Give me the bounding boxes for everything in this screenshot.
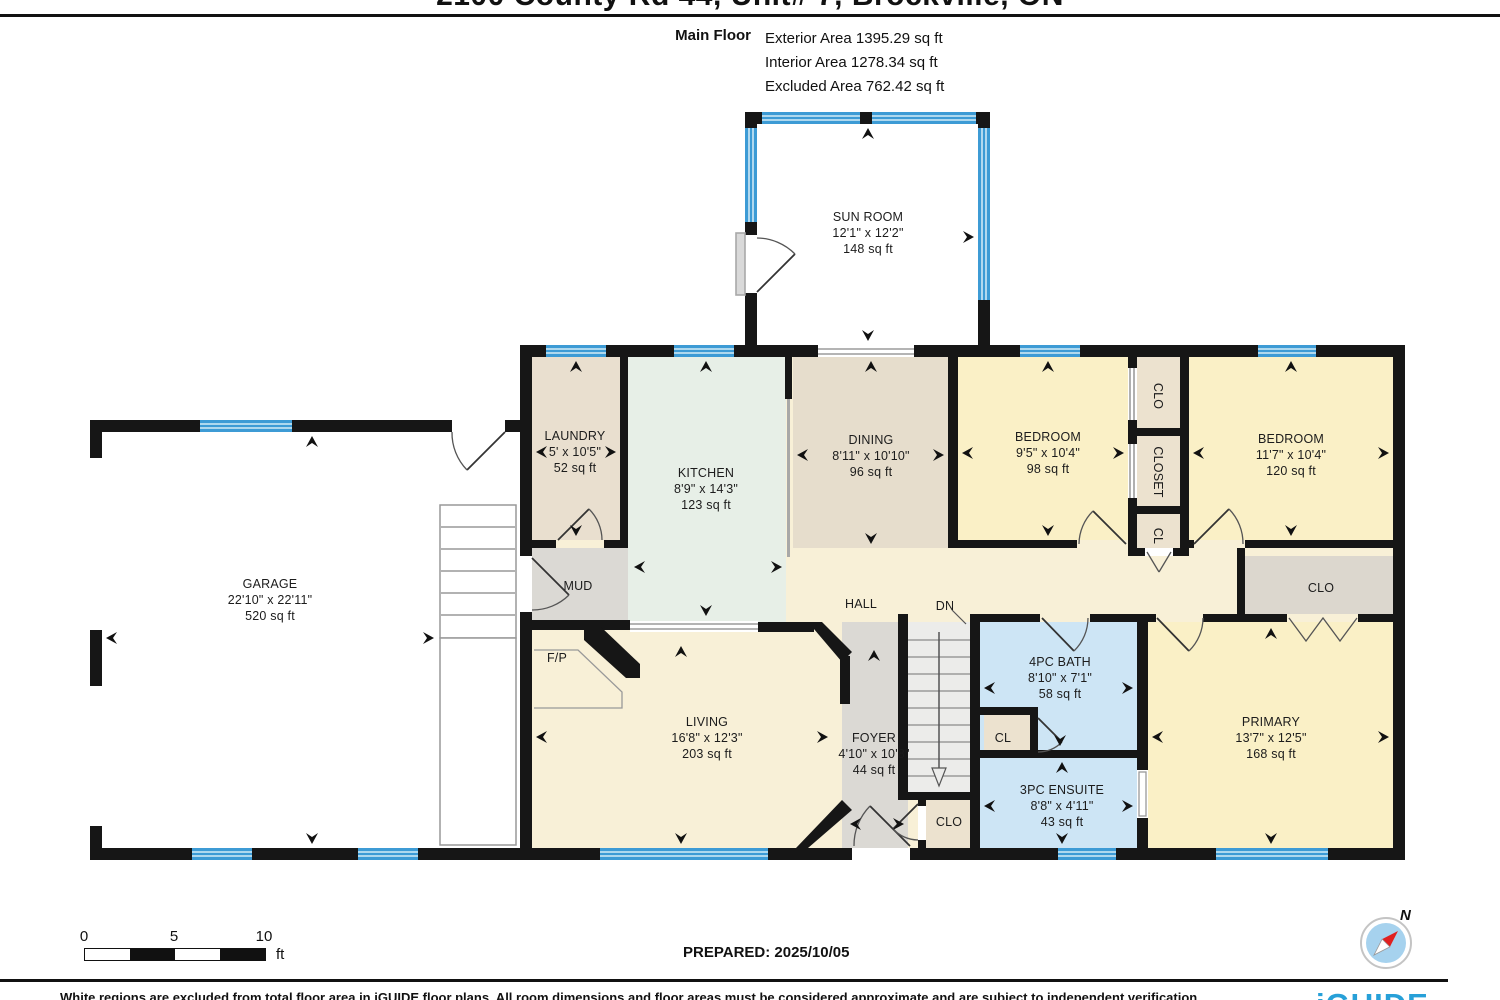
room-name: KITCHEN bbox=[674, 465, 738, 481]
room-name: BEDROOM bbox=[1256, 431, 1326, 447]
room-label-clo-right: CLO bbox=[1308, 580, 1334, 596]
room-name: PRIMARY bbox=[1235, 714, 1306, 730]
room-name: HALL bbox=[845, 596, 877, 612]
room-label-foyer: FOYER4'10" x 10'8"44 sq ft bbox=[838, 730, 909, 778]
room-name: CLOSET bbox=[1150, 446, 1166, 497]
scale-tick-5: 5 bbox=[170, 928, 178, 945]
room-dim: 13'7" x 12'5" bbox=[1235, 730, 1306, 746]
room-name: LIVING bbox=[671, 714, 742, 730]
room-dim: 16'8" x 12'3" bbox=[671, 730, 742, 746]
room-name: CL bbox=[995, 730, 1011, 746]
room-label-dn: DN bbox=[936, 598, 954, 614]
compass-north-label: N bbox=[1400, 907, 1412, 924]
disclaimer-text: White regions are excluded from total fl… bbox=[60, 990, 1201, 1000]
scale-unit: ft bbox=[276, 946, 284, 963]
room-dim: 11'7" x 10'4" bbox=[1256, 447, 1326, 463]
room-label-cl-mid: CL bbox=[1150, 528, 1166, 544]
room-name: 4PC BATH bbox=[1028, 654, 1092, 670]
room-dim: 22'10" x 22'11" bbox=[228, 592, 313, 608]
room-dim: 8'10" x 7'1" bbox=[1028, 670, 1092, 686]
room-label-bedroom-1: BEDROOM9'5" x 10'4"98 sq ft bbox=[1015, 429, 1081, 477]
room-area: 120 sq ft bbox=[1256, 463, 1326, 479]
room-name: 3PC ENSUITE bbox=[1020, 782, 1104, 798]
room-area: 520 sq ft bbox=[228, 608, 313, 624]
floor-plan-page: 2100 County Rd 44, Unit# 7, Brockville, … bbox=[0, 0, 1500, 1000]
room-area: 168 sq ft bbox=[1235, 746, 1306, 762]
room-name: SUN ROOM bbox=[832, 209, 903, 225]
room-label-clo-foyer: CLO bbox=[936, 814, 962, 830]
room-area: 43 sq ft bbox=[1020, 814, 1104, 830]
iguide-logo: iGUIDE bbox=[1316, 987, 1429, 1000]
room-label-bath-4pc: 4PC BATH8'10" x 7'1"58 sq ft bbox=[1028, 654, 1092, 702]
room-name: BEDROOM bbox=[1015, 429, 1081, 445]
scale-bar-segments bbox=[84, 948, 266, 961]
room-label-primary: PRIMARY13'7" x 12'5"168 sq ft bbox=[1235, 714, 1306, 762]
room-name: F/P bbox=[547, 650, 567, 666]
room-dim: 8'8" x 4'11" bbox=[1020, 798, 1104, 814]
room-area: 44 sq ft bbox=[838, 762, 909, 778]
garage-stairs bbox=[440, 505, 516, 845]
room-area: 98 sq ft bbox=[1015, 461, 1081, 477]
room-label-ensuite-3pc: 3PC ENSUITE8'8" x 4'11"43 sq ft bbox=[1020, 782, 1104, 830]
room-area: 58 sq ft bbox=[1028, 686, 1092, 702]
room-dim: 5' x 10'5" bbox=[545, 444, 606, 460]
room-name: LAUNDRY bbox=[545, 428, 606, 444]
room-label-bedroom-2: BEDROOM11'7" x 10'4"120 sq ft bbox=[1256, 431, 1326, 479]
room-label-living: LIVING16'8" x 12'3"203 sq ft bbox=[671, 714, 742, 762]
room-area: 96 sq ft bbox=[832, 464, 909, 480]
compass-icon: N bbox=[1354, 906, 1424, 976]
room-dim: 9'5" x 10'4" bbox=[1015, 445, 1081, 461]
room-name: CL bbox=[1150, 528, 1166, 544]
room-dim: 4'10" x 10'8" bbox=[838, 746, 909, 762]
room-name: CLO bbox=[936, 814, 962, 830]
room-area: 148 sq ft bbox=[832, 241, 903, 257]
room-area: 52 sq ft bbox=[545, 460, 606, 476]
room-label-cl-bath: CL bbox=[995, 730, 1011, 746]
room-label-dining: DINING8'11" x 10'10"96 sq ft bbox=[832, 432, 909, 480]
room-dim: 8'11" x 10'10" bbox=[832, 448, 909, 464]
prepared-date: PREPARED: 2025/10/05 bbox=[683, 944, 849, 961]
room-name: DINING bbox=[832, 432, 909, 448]
room-name: GARAGE bbox=[228, 576, 313, 592]
room-label-garage: GARAGE22'10" x 22'11"520 sq ft bbox=[228, 576, 313, 624]
room-label-hall: HALL bbox=[845, 596, 877, 612]
footer-divider bbox=[0, 979, 1448, 982]
room-area: 123 sq ft bbox=[674, 497, 738, 513]
room-label-mud: MUD bbox=[563, 578, 592, 594]
room-dim: 12'1" x 12'2" bbox=[832, 225, 903, 241]
room-label-sun-room: SUN ROOM12'1" x 12'2"148 sq ft bbox=[832, 209, 903, 257]
room-label-clo-top: CLO bbox=[1150, 383, 1166, 409]
scale-tick-0: 0 bbox=[80, 928, 88, 945]
room-name: CLO bbox=[1150, 383, 1166, 409]
scale-bar: 0 5 10 ft bbox=[84, 928, 284, 968]
room-label-fp: F/P bbox=[547, 650, 567, 666]
room-name: FOYER bbox=[838, 730, 909, 746]
room-name: DN bbox=[936, 598, 954, 614]
room-label-laundry: LAUNDRY5' x 10'5"52 sq ft bbox=[545, 428, 606, 476]
room-label-closet-mid: CLOSET bbox=[1150, 446, 1166, 497]
room-label-kitchen: KITCHEN8'9" x 14'3"123 sq ft bbox=[674, 465, 738, 513]
room-name: MUD bbox=[563, 578, 592, 594]
room-area: 203 sq ft bbox=[671, 746, 742, 762]
room-dim: 8'9" x 14'3" bbox=[674, 481, 738, 497]
floor-plan-svg bbox=[0, 0, 1500, 1000]
room-name: CLO bbox=[1308, 580, 1334, 596]
scale-tick-10: 10 bbox=[256, 928, 273, 945]
